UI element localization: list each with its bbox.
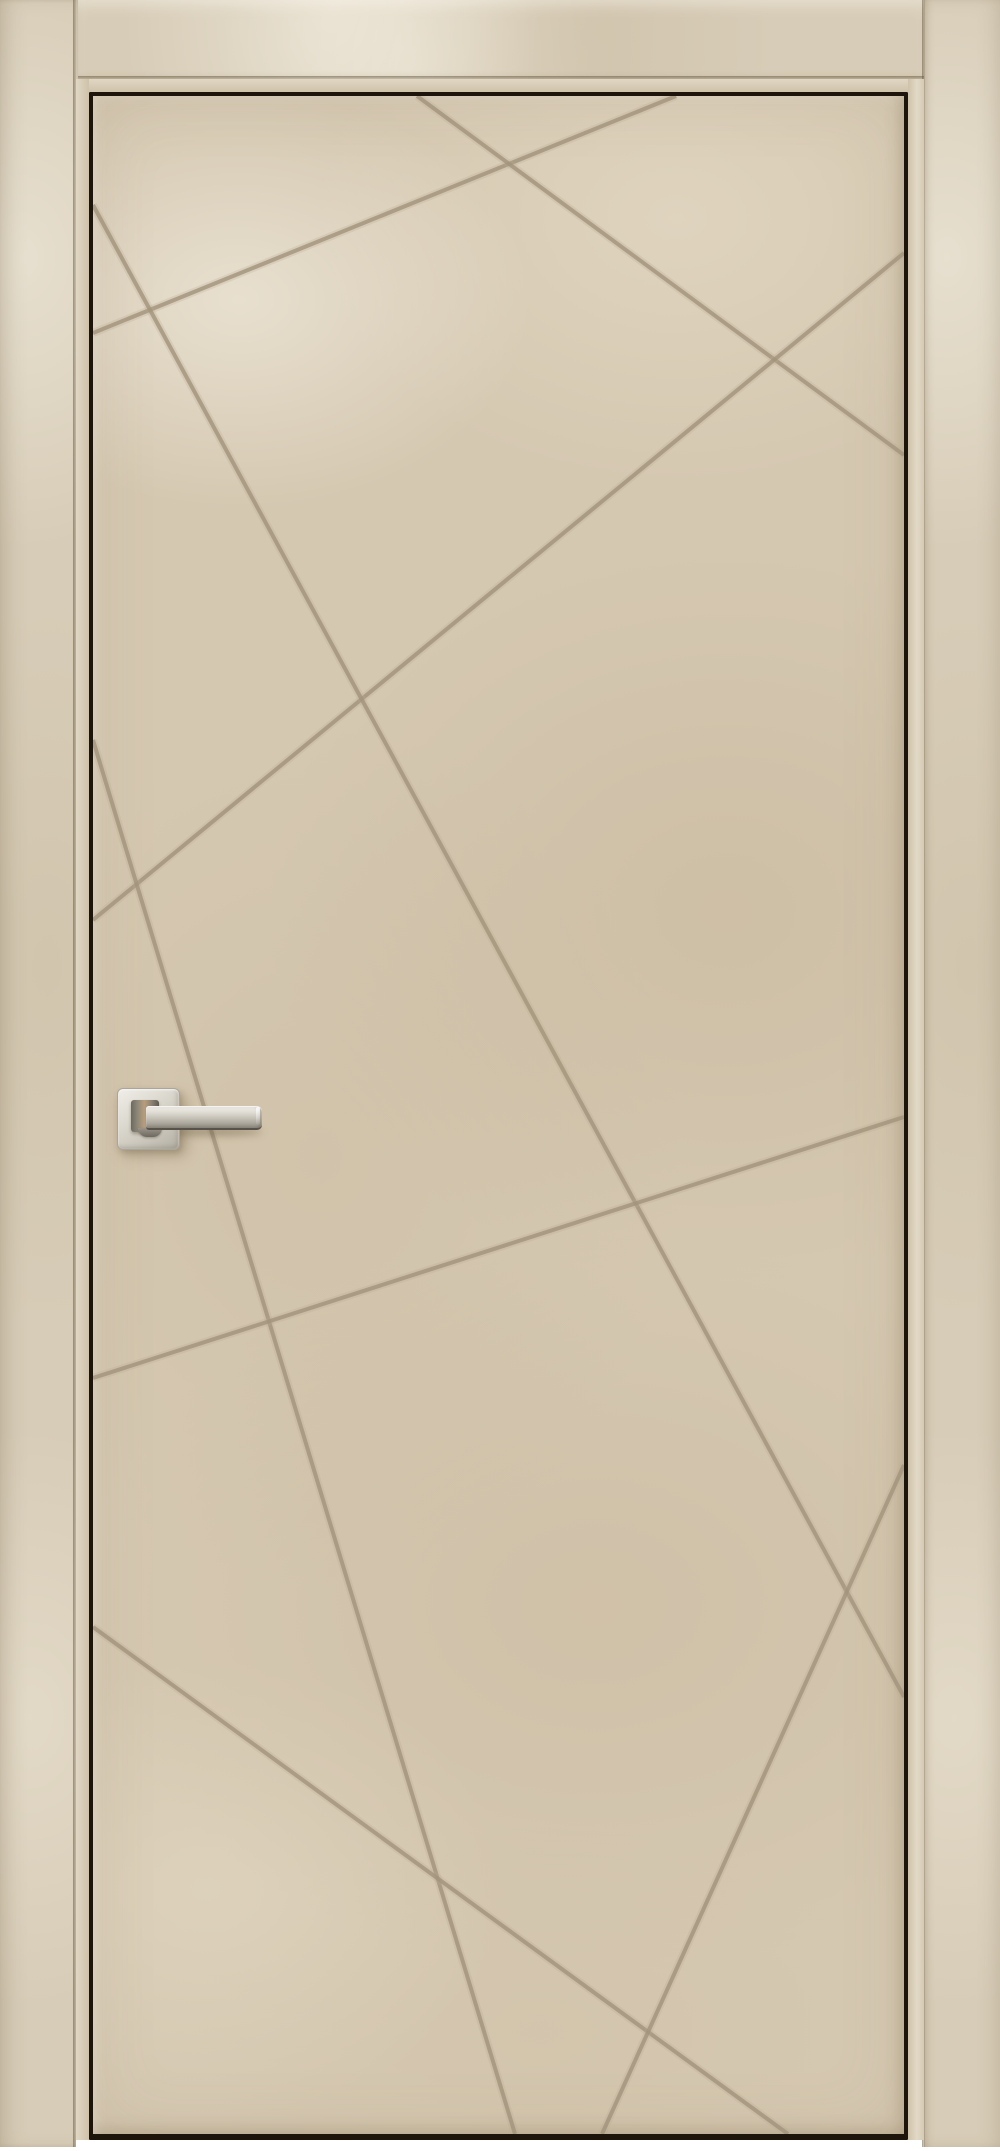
- right-jamb-reveal: [908, 79, 924, 2140]
- background-bottom-strip: [0, 2147, 1000, 2151]
- left-jamb-reveal: [76, 79, 89, 2140]
- handle-lever: [146, 1106, 262, 1130]
- door-frame-top-casing: [78, 0, 924, 80]
- door-frame-right-casing: [924, 0, 1000, 2147]
- door-frame-left-casing: [0, 0, 78, 2147]
- door-product-photo: [0, 0, 1000, 2151]
- top-jamb-reveal: [89, 79, 908, 92]
